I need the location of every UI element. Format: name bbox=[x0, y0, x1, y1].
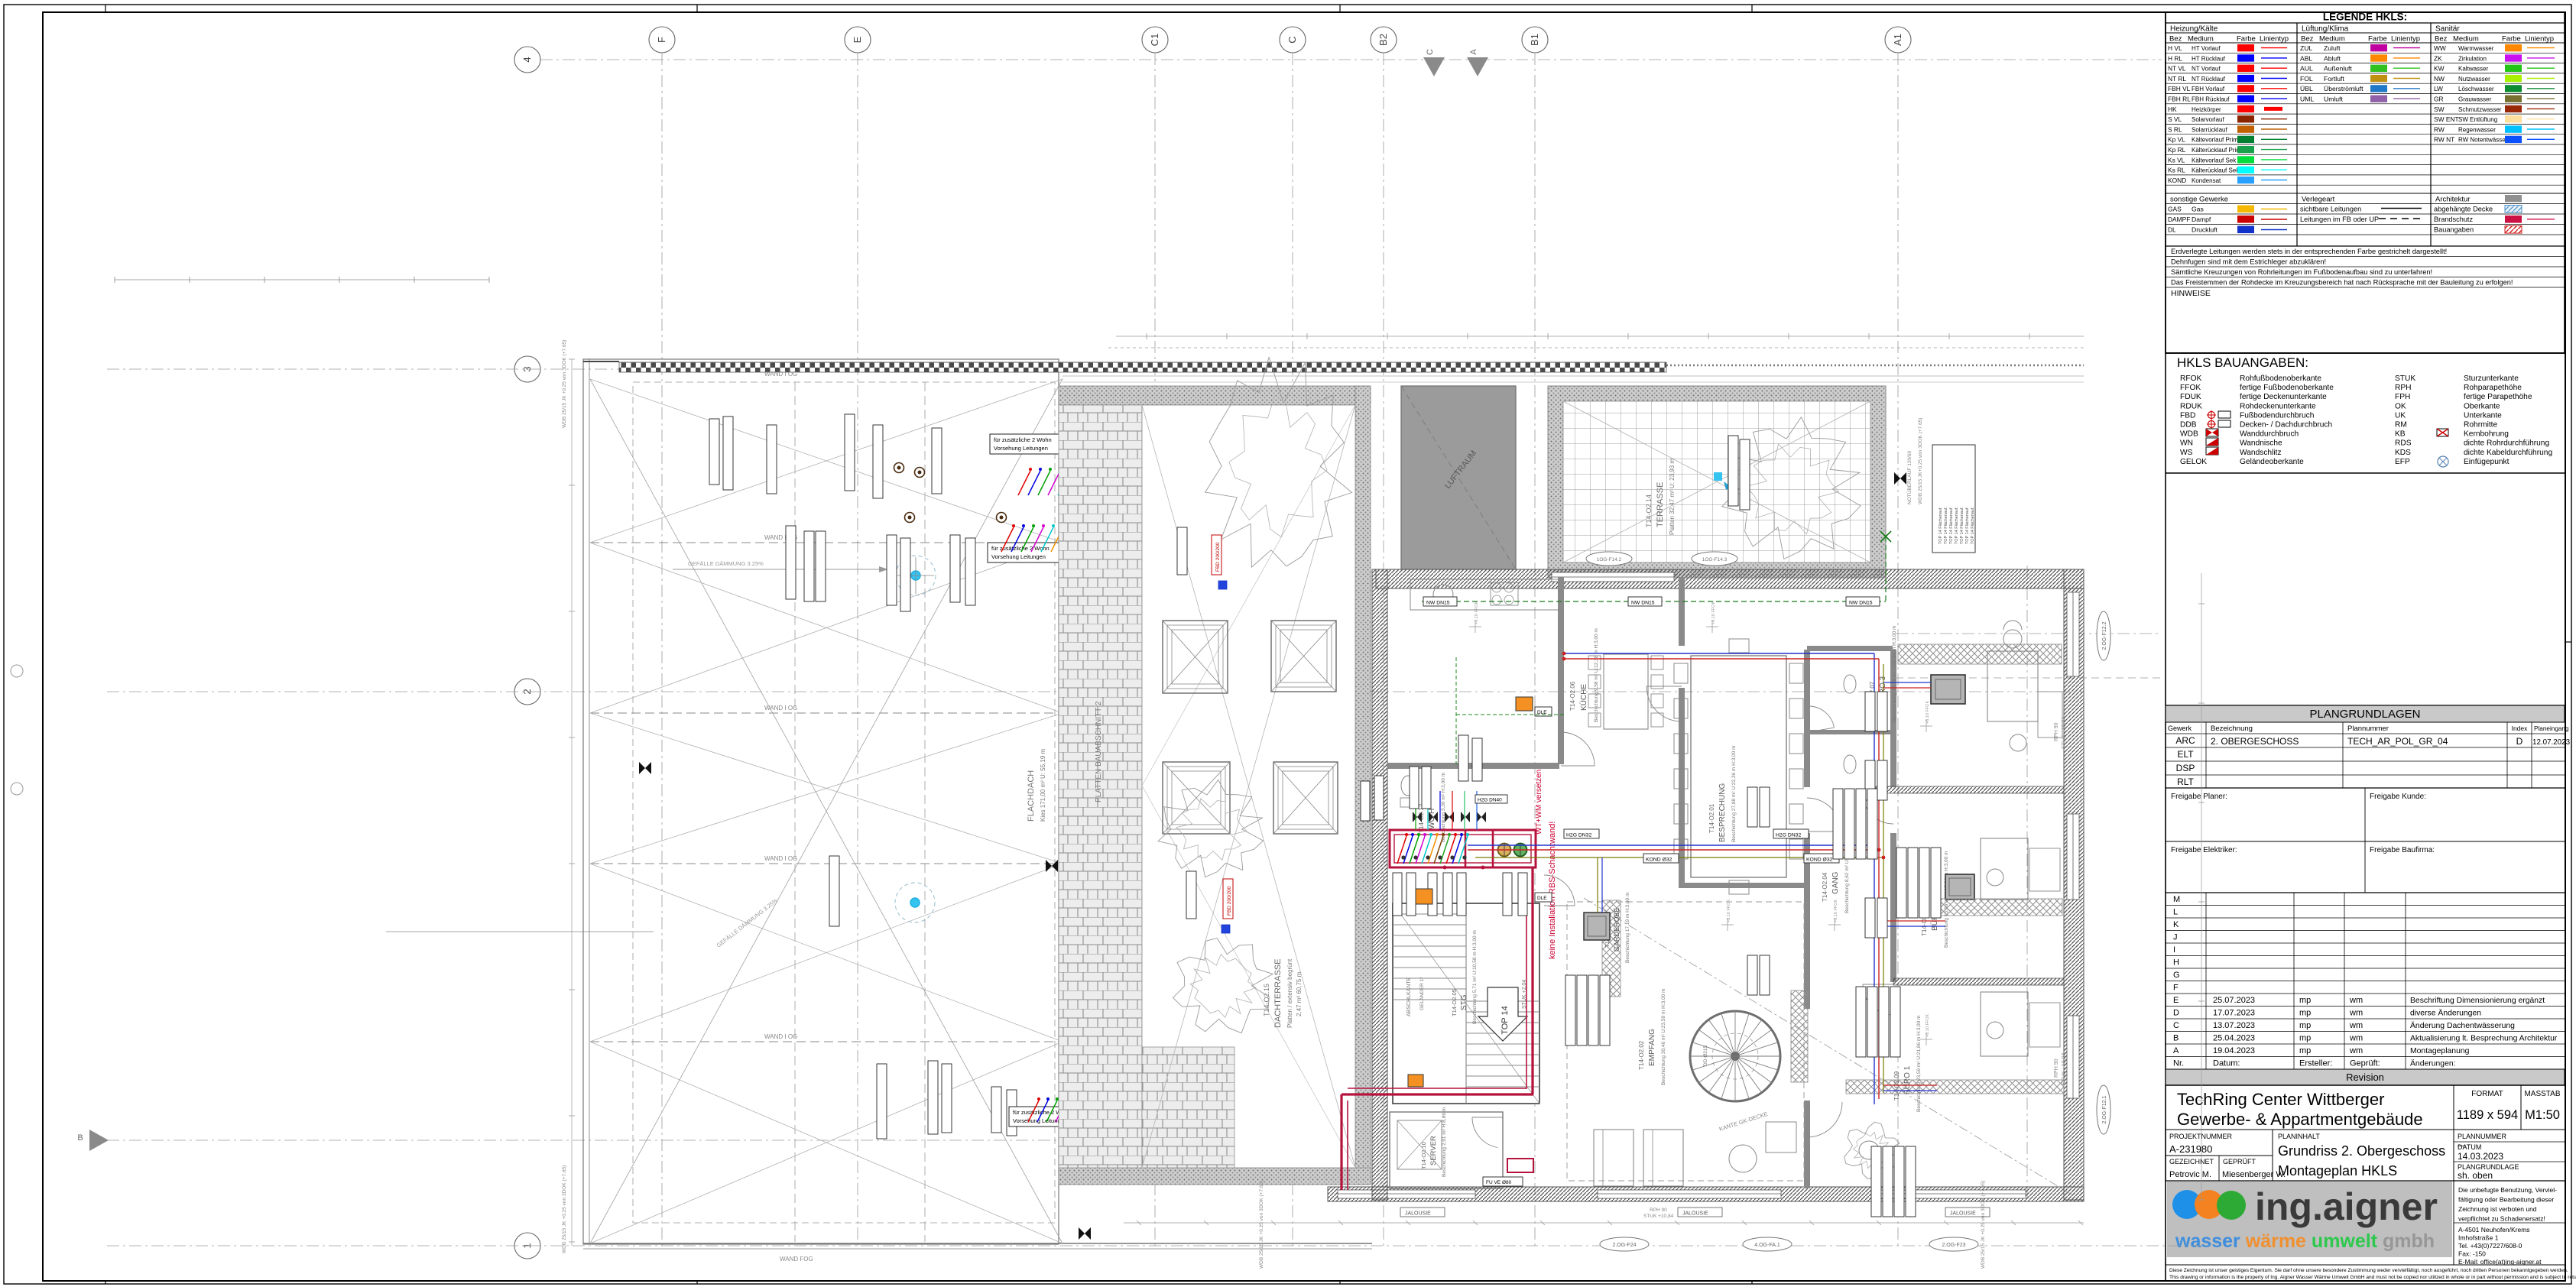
svg-text:GELOK: GELOK bbox=[2180, 458, 2207, 466]
svg-text:Kp VL: Kp VL bbox=[2168, 136, 2185, 144]
svg-text:FBH Vorlauf: FBH Vorlauf bbox=[2192, 86, 2225, 92]
svg-text:J: J bbox=[2173, 933, 2178, 942]
svg-text:SW ENT: SW ENT bbox=[2434, 115, 2459, 123]
svg-text:UML: UML bbox=[2300, 96, 2314, 103]
svg-text:wm: wm bbox=[2349, 1046, 2363, 1055]
svg-text:13.07.2023: 13.07.2023 bbox=[2213, 1021, 2255, 1030]
svg-text:S VL: S VL bbox=[2168, 115, 2182, 123]
svg-text:mp: mp bbox=[2299, 1046, 2311, 1055]
svg-text:TOP 14 Flächenauf.: TOP 14 Flächenauf. bbox=[1938, 507, 1943, 544]
svg-text:RM: RM bbox=[2395, 421, 2407, 430]
svg-text:B2: B2 bbox=[1377, 34, 1389, 46]
svg-text:TOP 14 Flächenauf.: TOP 14 Flächenauf. bbox=[1949, 507, 1954, 544]
svg-text:Revision: Revision bbox=[2346, 1071, 2384, 1083]
svg-text:Die unbefugte Benutzung, Vervi: Die unbefugte Benutzung, Verviel- bbox=[2458, 1186, 2557, 1194]
svg-text:MASSTAB: MASSTAB bbox=[2524, 1090, 2560, 1098]
svg-text:Geprüft:: Geprüft: bbox=[2350, 1059, 2380, 1068]
svg-text:E: E bbox=[2173, 996, 2179, 1005]
svg-text:H2G DN32: H2G DN32 bbox=[1776, 833, 1801, 838]
svg-text:H RL: H RL bbox=[2168, 54, 2182, 62]
svg-text:Erdverlegte Leitungen werden s: Erdverlegte Leitungen werden stets in de… bbox=[2171, 248, 2447, 255]
svg-text:RFOK: RFOK bbox=[2180, 374, 2202, 383]
svg-text:A: A bbox=[2173, 1046, 2179, 1055]
svg-text:Kp RL: Kp RL bbox=[2168, 146, 2186, 154]
svg-text:+8.10 FFOK: +8.10 FFOK bbox=[1475, 601, 1479, 624]
svg-text:NOTÜBERLAUF 120/60: NOTÜBERLAUF 120/60 bbox=[1906, 451, 1913, 504]
svg-text:Wandschlitz: Wandschlitz bbox=[2240, 449, 2282, 457]
svg-text:I: I bbox=[2173, 945, 2175, 955]
svg-text:M: M bbox=[2173, 895, 2180, 904]
svg-text:Beschriftung Dimensionierung e: Beschriftung Dimensionierung ergänzt bbox=[2410, 997, 2545, 1005]
svg-text:verpflichtet zu Schadenersatz!: verpflichtet zu Schadenersatz! bbox=[2458, 1215, 2545, 1223]
svg-text:RDUK: RDUK bbox=[2180, 402, 2202, 410]
svg-text:RW NT: RW NT bbox=[2434, 136, 2454, 144]
svg-text:A: A bbox=[1469, 49, 1478, 55]
svg-text:25.04.2023: 25.04.2023 bbox=[2213, 1034, 2255, 1043]
svg-text:mp: mp bbox=[2299, 1009, 2311, 1018]
svg-text:WS: WS bbox=[2180, 449, 2193, 457]
svg-text:FPH: FPH bbox=[2395, 393, 2410, 401]
svg-text:HKLS BAUANGABEN:: HKLS BAUANGABEN: bbox=[2177, 355, 2308, 370]
svg-text:Imhofstraße 1: Imhofstraße 1 bbox=[2458, 1234, 2499, 1242]
svg-text:TOP 14 Flächenauf.: TOP 14 Flächenauf. bbox=[1971, 507, 1975, 544]
svg-text:Warmwasser: Warmwasser bbox=[2458, 45, 2494, 52]
svg-text:SERVER: SERVER bbox=[1429, 1136, 1438, 1165]
svg-text:Beschichtung 2,91 m² H:8,89 m: Beschichtung 2,91 m² H:8,89 m bbox=[1442, 1107, 1447, 1177]
svg-text:B: B bbox=[77, 1133, 83, 1143]
svg-text:WAND I OG: WAND I OG bbox=[764, 705, 797, 712]
svg-text:Schmutzwasser: Schmutzwasser bbox=[2458, 106, 2502, 113]
svg-text:Fortluft: Fortluft bbox=[2324, 75, 2344, 83]
svg-text:Montageplanung: Montageplanung bbox=[2410, 1047, 2470, 1055]
svg-text:ARC: ARC bbox=[2175, 735, 2195, 746]
svg-text:Bauangaben: Bauangaben bbox=[2434, 226, 2474, 234]
svg-text:Beschichtung 5,71 m² U:10,58 m: Beschichtung 5,71 m² U:10,58 m H:3,00 m bbox=[1472, 930, 1478, 1024]
svg-text:D: D bbox=[2516, 736, 2523, 747]
svg-text:WDB 25/15 JK +0.25 von 3DOK (+: WDB 25/15 JK +0.25 von 3DOK (+7.65) bbox=[1981, 1181, 1986, 1269]
svg-text:wm: wm bbox=[2349, 996, 2363, 1005]
svg-text:H2G DN40: H2G DN40 bbox=[1478, 798, 1502, 803]
svg-text:TechRing Center Wittberger: TechRing Center Wittberger bbox=[2177, 1090, 2384, 1109]
svg-text:WDB 25/15 JK +0.25 von 3DOK: WDB 25/15 JK +0.25 von 3DOK (+7.65) bbox=[562, 1165, 567, 1253]
svg-text:DL: DL bbox=[2168, 226, 2176, 234]
svg-text:Leitungen im FB oder UP: Leitungen im FB oder UP bbox=[2300, 216, 2379, 223]
svg-text:Wandnische: Wandnische bbox=[2240, 439, 2282, 448]
svg-text:S RL: S RL bbox=[2168, 125, 2182, 133]
svg-text:GARDEROBE: GARDEROBE bbox=[1613, 907, 1621, 951]
svg-text:Tel. +43(0)7227/608-0: Tel. +43(0)7227/608-0 bbox=[2458, 1242, 2522, 1250]
svg-text:WN: WN bbox=[2180, 439, 2193, 448]
svg-text:Geländeoberkante: Geländeoberkante bbox=[2240, 458, 2304, 466]
svg-text:Druckluft: Druckluft bbox=[2192, 226, 2218, 234]
svg-text:PROJEKTNUMMER: PROJEKTNUMMER bbox=[2169, 1133, 2233, 1140]
svg-text:mp: mp bbox=[2299, 1034, 2311, 1043]
svg-text:wm: wm bbox=[2349, 1021, 2363, 1030]
svg-text:FBH Rücklauf: FBH Rücklauf bbox=[2192, 96, 2230, 103]
svg-text:Kaltwasser: Kaltwasser bbox=[2458, 66, 2488, 73]
svg-text:4.OG-FA.1: 4.OG-FA.1 bbox=[1754, 1243, 1780, 1248]
svg-text:M1:50: M1:50 bbox=[2525, 1108, 2560, 1122]
svg-text:H: H bbox=[2173, 958, 2179, 968]
svg-text:A1: A1 bbox=[1892, 34, 1903, 46]
svg-text:ZUL: ZUL bbox=[2300, 44, 2312, 52]
svg-text:RPH 90: RPH 90 bbox=[1650, 1208, 1667, 1213]
svg-text:fertige Parapethöhe: fertige Parapethöhe bbox=[2464, 393, 2532, 401]
svg-text:Farbe: Farbe bbox=[2368, 35, 2387, 44]
svg-text:Kondensat: Kondensat bbox=[2192, 177, 2221, 184]
svg-text:C: C bbox=[1286, 36, 1298, 43]
svg-text:dichte Kabeldurchführung: dichte Kabeldurchführung bbox=[2464, 449, 2552, 457]
svg-text:FBD 200/200: FBD 200/200 bbox=[1215, 542, 1221, 572]
svg-text:HK: HK bbox=[2168, 105, 2177, 113]
svg-text:4: 4 bbox=[521, 57, 533, 62]
svg-text:ing.aigner: ing.aigner bbox=[2255, 1185, 2438, 1228]
svg-text:RPH 90: RPH 90 bbox=[2054, 1058, 2059, 1078]
svg-text:Wanddurchbruch: Wanddurchbruch bbox=[2240, 430, 2299, 439]
svg-text:Medium: Medium bbox=[2188, 35, 2214, 44]
svg-text:ZK: ZK bbox=[2434, 54, 2442, 62]
svg-text:T14-O2.01: T14-O2.01 bbox=[1708, 803, 1715, 833]
svg-text:Kälterücklauf Sek: Kälterücklauf Sek bbox=[2192, 167, 2240, 174]
svg-text:Gas: Gas bbox=[2192, 206, 2204, 213]
svg-text:Beschichtung 23,59 m² U:21,86: Beschichtung 23,59 m² U:21,86 m H:3,00 m bbox=[1916, 1016, 1922, 1112]
svg-text:KB: KB bbox=[2395, 430, 2406, 439]
svg-text:SW Entlüftung: SW Entlüftung bbox=[2458, 116, 2497, 123]
svg-text:Bez: Bez bbox=[2301, 35, 2314, 44]
svg-text:Plannummer: Plannummer bbox=[2347, 725, 2389, 733]
svg-text:F: F bbox=[2173, 984, 2179, 993]
svg-text:17.07.2023: 17.07.2023 bbox=[2213, 1009, 2255, 1018]
svg-text:fältigung oder Bearbeitung die: fältigung oder Bearbeitung dieser bbox=[2458, 1196, 2554, 1204]
svg-text:Farbe: Farbe bbox=[2237, 35, 2256, 44]
svg-text:Rohfußbodenoberkante: Rohfußbodenoberkante bbox=[2240, 374, 2321, 383]
svg-text:TOP 14: TOP 14 bbox=[1501, 1006, 1510, 1035]
svg-text:ELT: ELT bbox=[2177, 749, 2194, 760]
svg-text:+8.10 FFOK: +8.10 FFOK bbox=[1711, 601, 1716, 624]
svg-text:RLT: RLT bbox=[2177, 776, 2194, 787]
svg-text:diverse Änderungen: diverse Änderungen bbox=[2410, 1009, 2481, 1018]
svg-text:Das Freistemmen der Rohdecke i: Das Freistemmen der Rohdecke im Kreuzung… bbox=[2171, 279, 2513, 287]
svg-text:PLATTEN BAUABSCHNITT 2: PLATTEN BAUABSCHNITT 2 bbox=[1095, 701, 1103, 802]
svg-text:Regenwasser: Regenwasser bbox=[2458, 126, 2496, 133]
svg-text:C: C bbox=[2173, 1021, 2179, 1030]
svg-text:Kies 171,00 m² U: 55,19 m: Kies 171,00 m² U: 55,19 m bbox=[1040, 749, 1046, 822]
svg-text:sh. oben: sh. oben bbox=[2458, 1170, 2493, 1181]
svg-text:Einfügepunkt: Einfügepunkt bbox=[2464, 458, 2509, 466]
svg-text:AUL: AUL bbox=[2300, 65, 2313, 73]
svg-text:WAND FOG: WAND FOG bbox=[780, 1256, 813, 1263]
svg-text:sichtbare Leitungen: sichtbare Leitungen bbox=[2300, 206, 2361, 213]
svg-text:T14-O2.04: T14-O2.04 bbox=[1822, 872, 1828, 902]
svg-text:Petrovic M.: Petrovic M. bbox=[2169, 1170, 2211, 1179]
svg-text:KW: KW bbox=[2434, 65, 2445, 73]
svg-text:Bez: Bez bbox=[2435, 35, 2448, 44]
svg-text:Kernbohrung: Kernbohrung bbox=[2464, 430, 2509, 439]
svg-text:+8.10 FFOK: +8.10 FFOK bbox=[1926, 701, 1930, 724]
svg-text:STUK: STUK bbox=[2395, 374, 2415, 383]
svg-text:Ks RL: Ks RL bbox=[2168, 167, 2185, 174]
svg-text:ABL: ABL bbox=[2300, 54, 2312, 62]
svg-text:mp: mp bbox=[2299, 996, 2311, 1005]
svg-text:HT Rücklauf: HT Rücklauf bbox=[2192, 55, 2226, 62]
svg-text:OK: OK bbox=[2395, 402, 2406, 410]
svg-text:Medium: Medium bbox=[2319, 35, 2345, 44]
svg-text:HINWEISE: HINWEISE bbox=[2171, 289, 2211, 298]
svg-text:Zeichnung ist verboten und: Zeichnung ist verboten und bbox=[2458, 1205, 2537, 1213]
svg-text:WDB 25/15 JK +0.25 von 3DOK: WDB 25/15 JK +0.25 von 3DOK (+7.65) bbox=[562, 340, 567, 428]
svg-text:HT Vorlauf: HT Vorlauf bbox=[2192, 45, 2221, 52]
svg-text:Löschwasser: Löschwasser bbox=[2458, 86, 2494, 92]
svg-text:Abluft: Abluft bbox=[2324, 54, 2341, 62]
svg-text:Freigabe Elektriker:: Freigabe Elektriker: bbox=[2171, 846, 2237, 854]
svg-text:PLANNUMMER: PLANNUMMER bbox=[2458, 1133, 2507, 1140]
svg-text:Freigabe Kunde:: Freigabe Kunde: bbox=[2370, 793, 2426, 801]
svg-text:Zirkulation: Zirkulation bbox=[2458, 55, 2487, 62]
svg-text:RPH: RPH bbox=[2395, 384, 2412, 392]
svg-text:2.OG-F12.2: 2.OG-F12.2 bbox=[2102, 621, 2107, 650]
svg-text:BESPRECHUNG: BESPRECHUNG bbox=[1718, 783, 1727, 842]
svg-text:T14-O2.10: T14-O2.10 bbox=[1420, 1142, 1427, 1169]
svg-text:RPH 90: RPH 90 bbox=[2054, 722, 2059, 741]
svg-text:Rohdeckenunterkante: Rohdeckenunterkante bbox=[2240, 402, 2316, 410]
svg-text:NW: NW bbox=[2434, 75, 2445, 83]
svg-text:DACHTERRASSE: DACHTERRASSE bbox=[1273, 959, 1283, 1028]
svg-text:WDB: WDB bbox=[2180, 430, 2198, 439]
svg-text:RDS: RDS bbox=[2395, 439, 2412, 448]
svg-text:Platten 32,47 m² U: 23,93 m: Platten 32,47 m² U: 23,93 m bbox=[1669, 459, 1676, 535]
svg-text:LEGENDE HKLS:: LEGENDE HKLS: bbox=[2323, 11, 2407, 23]
svg-text:FLACHDACH: FLACHDACH bbox=[1027, 770, 1036, 822]
svg-text:C1: C1 bbox=[1149, 34, 1160, 47]
svg-text:2.OG-F23: 2.OG-F23 bbox=[1942, 1243, 1965, 1248]
svg-text:2. OBERGESCHOSS: 2. OBERGESCHOSS bbox=[2211, 736, 2299, 747]
svg-text:Linientyp: Linientyp bbox=[2391, 35, 2420, 44]
svg-text:mp: mp bbox=[2299, 1021, 2311, 1030]
svg-text:Beschichtung 3,30 m² H:3,00 m: Beschichtung 3,30 m² H:3,00 m bbox=[1441, 773, 1446, 842]
svg-text:Sturzunterkante: Sturzunterkante bbox=[2464, 374, 2519, 383]
svg-text:DDB: DDB bbox=[2180, 421, 2197, 430]
svg-text:Sanitär: Sanitär bbox=[2435, 25, 2460, 34]
svg-text:Montageplan HKLS: Montageplan HKLS bbox=[2278, 1163, 2397, 1178]
svg-text:JALOUSIE: JALOUSIE bbox=[1682, 1211, 1708, 1217]
svg-text:F: F bbox=[656, 37, 667, 43]
svg-text:Bezeichnung: Bezeichnung bbox=[2211, 725, 2253, 733]
svg-text:Nr.: Nr. bbox=[2173, 1059, 2184, 1068]
svg-text:19.04.2023: 19.04.2023 bbox=[2213, 1046, 2255, 1055]
svg-text:12.07.2023: 12.07.2023 bbox=[2532, 738, 2571, 747]
svg-text:Heizung/Kälte: Heizung/Kälte bbox=[2170, 25, 2218, 34]
svg-text:Ersteller:: Ersteller: bbox=[2299, 1059, 2332, 1068]
svg-text:Fußbodendurchbruch: Fußbodendurchbruch bbox=[2240, 411, 2314, 420]
svg-text:FBH VL: FBH VL bbox=[2168, 85, 2191, 92]
svg-text:GEFÄLLE DÄMMUNG 3.25%: GEFÄLLE DÄMMUNG 3.25% bbox=[688, 560, 764, 567]
svg-text:Änderungen:: Änderungen: bbox=[2410, 1059, 2456, 1068]
svg-text:2,47 m² 60,75 m: 2,47 m² 60,75 m bbox=[1296, 971, 1303, 1016]
svg-text:Fax: -150: Fax: -150 bbox=[2458, 1250, 2486, 1258]
svg-text:Freigabe Baufirma:: Freigabe Baufirma: bbox=[2370, 846, 2435, 854]
svg-text:ÜBL: ÜBL bbox=[2300, 85, 2313, 92]
svg-text:2.OG-F12.1: 2.OG-F12.1 bbox=[2102, 1095, 2107, 1123]
svg-text:TOP 14 Flächenauf.: TOP 14 Flächenauf. bbox=[1960, 507, 1964, 544]
svg-text:WW: WW bbox=[2434, 44, 2446, 52]
svg-text:KOND Ø32: KOND Ø32 bbox=[1646, 857, 1672, 863]
svg-text:SW: SW bbox=[2434, 105, 2445, 113]
svg-text:wm: wm bbox=[2349, 1009, 2363, 1018]
svg-text:sonstige Gewerke: sonstige Gewerke bbox=[2170, 196, 2228, 204]
svg-text:Lüftung/Klima: Lüftung/Klima bbox=[2302, 25, 2349, 34]
svg-text:DAMPF: DAMPF bbox=[2168, 216, 2190, 223]
svg-text:1189 x 594: 1189 x 594 bbox=[2457, 1108, 2518, 1122]
svg-text:B: B bbox=[2173, 1034, 2179, 1043]
svg-text:KDS: KDS bbox=[2395, 449, 2411, 457]
svg-text:FOL: FOL bbox=[2300, 75, 2313, 83]
svg-text:T14-O2.06: T14-O2.06 bbox=[1569, 681, 1576, 711]
svg-text:TOP 14 Flächenauf.: TOP 14 Flächenauf. bbox=[1955, 507, 1959, 544]
svg-text:EMPFANG: EMPFANG bbox=[1648, 1029, 1656, 1066]
svg-text:FU VE Ø80: FU VE Ø80 bbox=[1486, 1180, 1512, 1185]
svg-text:D: D bbox=[2173, 1009, 2179, 1018]
svg-text:L: L bbox=[2173, 908, 2178, 917]
svg-text:Überströmluft: Überströmluft bbox=[2324, 85, 2363, 92]
svg-text:Platten / extensiv begrünt: Platten / extensiv begrünt bbox=[1286, 958, 1293, 1028]
svg-text:DLE: DLE bbox=[1537, 896, 1547, 901]
svg-text:T14-O2.14: T14-O2.14 bbox=[1645, 494, 1653, 527]
svg-text:Beschichtung 17,19 m H:3,00 m: Beschichtung 17,19 m H:3,00 m bbox=[1625, 893, 1630, 964]
svg-text:PLANINHALT: PLANINHALT bbox=[2278, 1133, 2320, 1140]
svg-text:WAND I OG: WAND I OG bbox=[764, 371, 797, 378]
svg-text:NW DN15: NW DN15 bbox=[1849, 601, 1873, 606]
svg-text:Verlegeart: Verlegeart bbox=[2302, 196, 2335, 204]
svg-text:T14-O2.15: T14-O2.15 bbox=[1263, 984, 1270, 1016]
svg-text:+8.10 FFOK: +8.10 FFOK bbox=[1926, 1014, 1930, 1037]
svg-text:Sämtliche Kreuzungen von Rohrl: Sämtliche Kreuzungen von Rohrleitungen i… bbox=[2171, 268, 2432, 276]
svg-text:LW: LW bbox=[2434, 85, 2443, 92]
svg-text:Dehnfugen sind mit dem Estrich: Dehnfugen sind mit dem Estrichleger abzu… bbox=[2171, 258, 2326, 266]
svg-text:STUK +10,94: STUK +10,94 bbox=[2062, 1053, 2067, 1085]
svg-text:Kälterücklauf Prim: Kälterücklauf Prim bbox=[2192, 147, 2241, 154]
svg-text:WAND I OG: WAND I OG bbox=[764, 1033, 797, 1040]
svg-text:A-231980: A-231980 bbox=[2169, 1143, 2212, 1155]
svg-text:WDB 25/15 JK+0.25 von 3DOK (+7: WDB 25/15 JK+0.25 von 3DOK (+7.65) bbox=[1918, 418, 1923, 504]
svg-text:Aktualisierung lt. Besprechung: Aktualisierung lt. Besprechung Architekt… bbox=[2410, 1035, 2558, 1043]
svg-text:Nutzwasser: Nutzwasser bbox=[2458, 76, 2490, 83]
svg-text:Gewerk: Gewerk bbox=[2168, 725, 2192, 732]
svg-text:Index: Index bbox=[2512, 725, 2529, 732]
svg-text:Farbe: Farbe bbox=[2502, 35, 2521, 44]
svg-text:2.OG-F24: 2.OG-F24 bbox=[1612, 1243, 1636, 1248]
svg-text:fertige Fußbodenoberkante: fertige Fußbodenoberkante bbox=[2240, 384, 2334, 392]
svg-text:Unterkante: Unterkante bbox=[2464, 411, 2502, 420]
svg-text:STG: STG bbox=[1460, 994, 1468, 1010]
svg-text:Ks VL: Ks VL bbox=[2168, 156, 2185, 164]
svg-text:Brandschutz: Brandschutz bbox=[2434, 216, 2473, 223]
svg-text:1OG-F14.2: 1OG-F14.2 bbox=[1597, 557, 1622, 562]
svg-text:Änderung Dachentwässerung: Änderung Dachentwässerung bbox=[2410, 1021, 2515, 1030]
svg-text:GEPRÜFT: GEPRÜFT bbox=[2223, 1158, 2256, 1165]
svg-text:T14-O2.05: T14-O2.05 bbox=[1451, 989, 1458, 1016]
svg-text:dichte Rohrdurchführung: dichte Rohrdurchführung bbox=[2464, 439, 2549, 448]
svg-text:Decken- / Dachdurchbruch: Decken- / Dachdurchbruch bbox=[2240, 421, 2332, 430]
svg-text:14.03.2023: 14.03.2023 bbox=[2458, 1151, 2503, 1162]
svg-text:A-4501 Neuhofen/Krems: A-4501 Neuhofen/Krems bbox=[2458, 1226, 2530, 1234]
svg-text:FORMAT: FORMAT bbox=[2471, 1090, 2503, 1098]
svg-text:DSP: DSP bbox=[2176, 763, 2195, 773]
svg-text:FBH RL: FBH RL bbox=[2168, 96, 2191, 103]
svg-text:Rohrmitte: Rohrmitte bbox=[2464, 421, 2497, 430]
svg-text:Grundriss 2. Obergeschoss: Grundriss 2. Obergeschoss bbox=[2278, 1143, 2445, 1159]
svg-text:Diese Zeichnung ist unser geis: Diese Zeichnung ist unser geistiges Eige… bbox=[2169, 1268, 2568, 1273]
svg-text:Außenluft: Außenluft bbox=[2324, 65, 2352, 73]
svg-text:Heizkörper: Heizkörper bbox=[2192, 106, 2221, 113]
svg-text:Kältevorlauf Sek: Kältevorlauf Sek bbox=[2192, 157, 2237, 164]
svg-text:Beschichtung 9,58 m² U:12,38 m: Beschichtung 9,58 m² U:12,38 m H:3,00 m bbox=[1594, 628, 1599, 722]
svg-text:25.07.2023: 25.07.2023 bbox=[2213, 996, 2255, 1005]
svg-text:This drawing or information is: This drawing or information is the prope… bbox=[2169, 1275, 2576, 1280]
svg-text:TOP 14 Flächenauf.: TOP 14 Flächenauf. bbox=[1965, 507, 1970, 544]
svg-text:DATUM: DATUM bbox=[2458, 1143, 2481, 1151]
svg-text:STUK +10,84: STUK +10,84 bbox=[1643, 1214, 1674, 1219]
svg-text:Gewerbe- & Appartmentgebäude: Gewerbe- & Appartmentgebäude bbox=[2177, 1110, 2423, 1129]
svg-text:K: K bbox=[2173, 920, 2179, 929]
svg-text:Vorsehung Leitungen: Vorsehung Leitungen bbox=[994, 445, 1048, 452]
svg-text:TERRASSE: TERRASSE bbox=[1656, 482, 1665, 527]
svg-text:1OG-F14.3: 1OG-F14.3 bbox=[1702, 557, 1728, 562]
svg-text:Grauwasser: Grauwasser bbox=[2458, 96, 2491, 103]
svg-text:Umluft: Umluft bbox=[2324, 96, 2343, 103]
svg-text:KÜCHE: KÜCHE bbox=[1579, 684, 1588, 711]
svg-text:Solarrücklauf: Solarrücklauf bbox=[2192, 126, 2227, 133]
svg-text:WT+WM versetzen: WT+WM versetzen bbox=[1535, 770, 1543, 835]
svg-text:Zuluft: Zuluft bbox=[2324, 44, 2341, 52]
svg-text:GEZEICHNET: GEZEICHNET bbox=[2169, 1158, 2214, 1165]
svg-text:H2G DN32: H2G DN32 bbox=[1566, 833, 1591, 838]
svg-text:Vorsehung Leitungen: Vorsehung Leitungen bbox=[991, 553, 1046, 560]
svg-text:für zusätzliche 2 Wohn: für zusätzliche 2 Wohn bbox=[994, 436, 1052, 443]
svg-text:JALOUSIE: JALOUSIE bbox=[1405, 1211, 1431, 1217]
svg-text:Beschichtung 30,46 m² U:23,59: Beschichtung 30,46 m² U:23,59 m H:3,00 m bbox=[1661, 989, 1666, 1085]
svg-text:PLANGRUNDLAGEN: PLANGRUNDLAGEN bbox=[2309, 708, 2420, 721]
svg-text:B1: B1 bbox=[1529, 34, 1540, 46]
svg-text:GANG: GANG bbox=[1831, 871, 1840, 894]
svg-text:GAS: GAS bbox=[2168, 206, 2182, 213]
svg-text:Architektur: Architektur bbox=[2435, 196, 2470, 204]
svg-text:Linientyp: Linientyp bbox=[2525, 35, 2554, 44]
svg-text:Miesenberger W.: Miesenberger W. bbox=[2222, 1170, 2286, 1179]
svg-text:TOP 14 Flächenauf.: TOP 14 Flächenauf. bbox=[1944, 507, 1948, 544]
svg-text:FFOK: FFOK bbox=[2180, 384, 2201, 392]
svg-text:NW DN15: NW DN15 bbox=[1426, 601, 1450, 606]
svg-text:H VL: H VL bbox=[2168, 44, 2182, 52]
svg-text:RW: RW bbox=[2434, 125, 2445, 133]
svg-text:G: G bbox=[2173, 971, 2180, 980]
svg-text:Oberkante: Oberkante bbox=[2464, 402, 2500, 410]
svg-text:JALOUSIE: JALOUSIE bbox=[1950, 1211, 1976, 1217]
svg-text:wasser wärme umwelt gmbh: wasser wärme umwelt gmbh bbox=[2175, 1230, 2435, 1252]
svg-text:keine Installation RBS-Schacht: keine Installation RBS-Schachtwand! bbox=[1548, 822, 1557, 959]
svg-text:NW DN15: NW DN15 bbox=[1631, 601, 1655, 606]
svg-text:EFP: EFP bbox=[2395, 458, 2410, 466]
svg-text:Kältevorlauf Prim: Kältevorlauf Prim bbox=[2192, 137, 2238, 144]
svg-text:NT Rücklauf: NT Rücklauf bbox=[2192, 76, 2226, 83]
svg-text:NT Vorlauf: NT Vorlauf bbox=[2192, 66, 2221, 73]
svg-text:KOND: KOND bbox=[2168, 177, 2186, 184]
svg-text:+8.10 FFOK: +8.10 FFOK bbox=[1727, 900, 1731, 922]
svg-text:E: E bbox=[852, 36, 863, 43]
svg-text:Beschichtung 27,88 m² U:22,36: Beschichtung 27,88 m² U:22,36 m H:3,00 m bbox=[1731, 746, 1737, 842]
svg-text:DD Ø215: DD Ø215 bbox=[1703, 1045, 1708, 1066]
svg-text:KOND Ø32: KOND Ø32 bbox=[1806, 857, 1833, 863]
svg-text:NT RL: NT RL bbox=[2168, 75, 2186, 83]
